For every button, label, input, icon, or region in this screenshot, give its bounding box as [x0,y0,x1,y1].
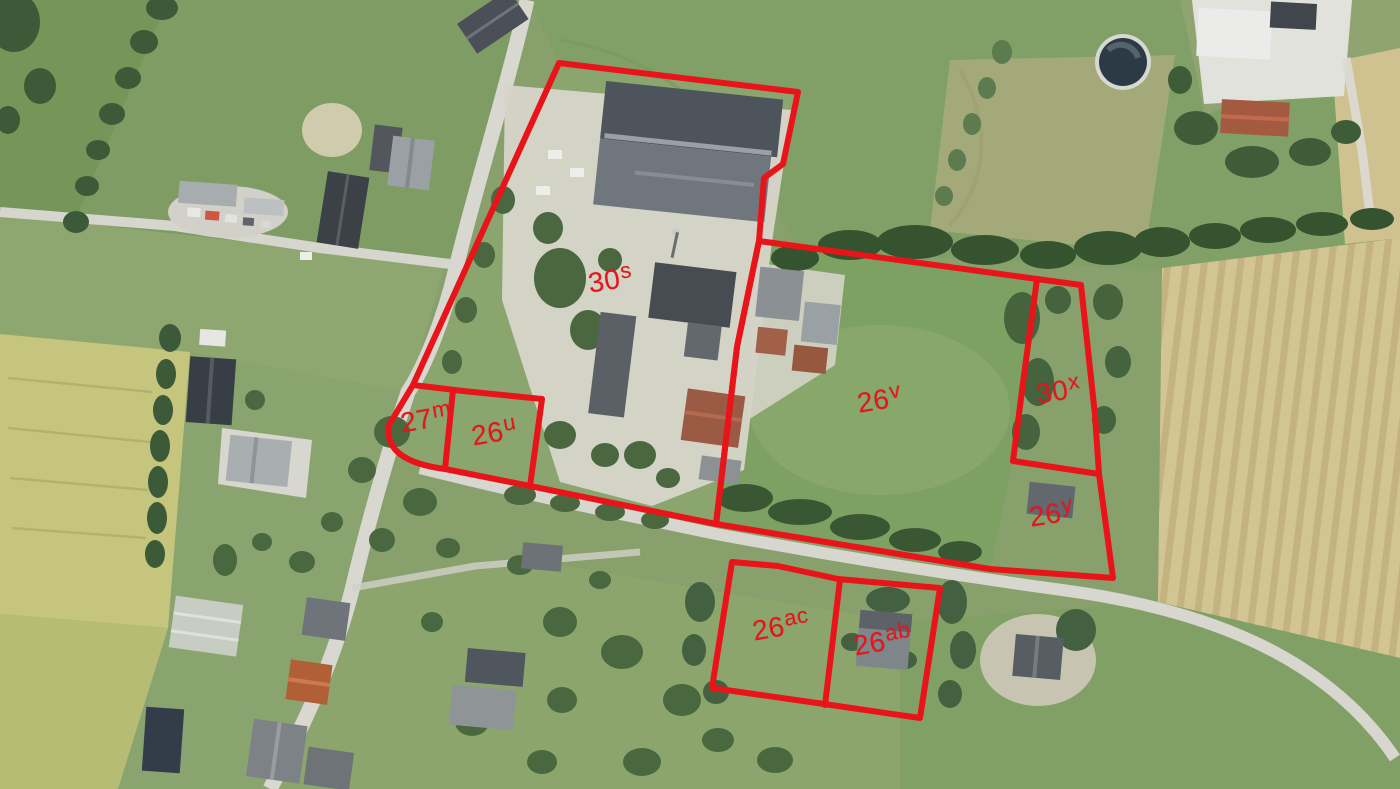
boundary-parcel-26v-30x-26y-outline [716,241,1113,578]
boundary-parcel-30s-outline [388,63,798,524]
aerial-map: 30s26v30x26y27m26u26ac26ab [0,0,1400,789]
boundary-line-26ac-26ab-divider [825,580,840,705]
boundary-line-27m-26u-top [413,385,542,399]
boundary-line-26u-east [530,399,542,486]
boundary-line-26y-north [1013,461,1099,474]
parcel-boundary-overlay [0,0,1400,789]
boundary-line-27m-26u-divider [445,390,453,469]
boundary-line-30x-west [1013,279,1037,461]
